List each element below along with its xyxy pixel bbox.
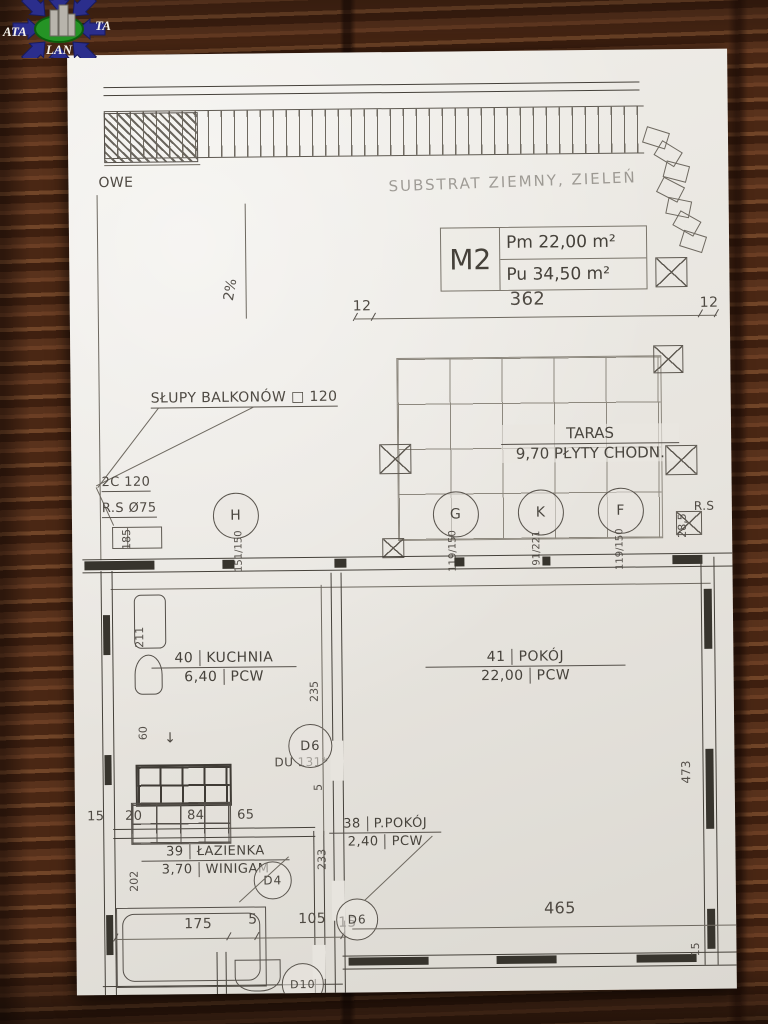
dim-84: 84: [187, 808, 204, 823]
dim-202: 202: [128, 871, 141, 892]
dim-185: 185: [120, 529, 133, 550]
room-name: POKÓJ: [511, 648, 564, 665]
door-marker-d4: D4: [254, 861, 292, 899]
dim-12-left: 12: [353, 298, 372, 314]
dim-105: 105: [298, 911, 326, 927]
area-pu: Pu 34,50 m²: [500, 258, 646, 290]
room-no: 39: [166, 844, 184, 859]
kitchen-cabinets-upper: [136, 764, 232, 807]
room-label-living: 41POKÓJ 22,00PCW: [425, 648, 625, 685]
dim-473: 473: [679, 761, 693, 784]
unit-data-box: M2 Pm 22,00 m² Pu 34,50 m²: [440, 225, 648, 291]
room-area: 3,70: [162, 862, 193, 877]
left-reference-line: [97, 195, 102, 560]
top-dimension-line: [355, 315, 717, 320]
room-area: 6,40: [184, 669, 217, 685]
bottom-dim-line-right: [352, 925, 736, 930]
room-no: 38: [343, 816, 361, 831]
dim-233: 233: [315, 849, 328, 870]
dim-12-right: 12: [700, 295, 719, 311]
pipe-short-note: R.S: [694, 499, 715, 513]
door-marker-d6-lower: D6: [336, 898, 378, 940]
columns-note: SŁUPY BALKONÓW □ 120: [151, 389, 338, 409]
room-no: 40: [174, 650, 193, 666]
pipe-note: R.S Ø75: [102, 501, 157, 519]
column-marker: [665, 445, 697, 475]
dim-20: 20: [125, 809, 142, 824]
terrace-label: TARAS 9,70 PŁYTY CHODN.: [501, 423, 679, 463]
area-pm: Pm 22,00 m²: [500, 226, 646, 259]
room-floor: PCW: [530, 667, 571, 683]
axis-marker-k: K: [518, 489, 564, 535]
terrace-name: TARAS: [501, 423, 679, 445]
logo-text-bottom: LAN: [45, 42, 73, 57]
dim-15-right: 15: [689, 942, 702, 956]
room-name: KUCHNIA: [199, 649, 273, 666]
paper-sheet: OWE SUBSTRAT ZIEMNY, ZIELEŃ 2% M2 Pm 22,…: [67, 49, 737, 996]
dim-28-5: 28,5: [676, 513, 689, 538]
dim-5: 5: [312, 784, 325, 791]
dim-465: 465: [544, 898, 576, 917]
dim-211: 211: [133, 627, 146, 648]
logo-buildings: [50, 5, 75, 36]
dim-chain-line: [321, 585, 325, 835]
room-label-hall: 38P.POKÓJ 2,40PCW: [329, 816, 441, 850]
door-marker-d6-upper: D6: [288, 724, 332, 768]
dim-362: 362: [510, 288, 546, 309]
atalan-logo: ATA TA LAN: [0, 0, 118, 58]
hatched-block: [104, 112, 199, 163]
column-marker: [655, 257, 687, 287]
facade-wall: [82, 553, 732, 574]
floor-plan: OWE SUBSTRAT ZIEMNY, ZIELEŃ 2% M2 Pm 22,…: [67, 49, 737, 996]
dim-60: 60: [137, 726, 150, 740]
kitchen-cabinets-lower: [131, 802, 231, 845]
logo-graphic: ATA TA LAN: [0, 0, 118, 58]
room-area: 22,00: [481, 668, 524, 684]
wall-inner-line: [111, 583, 711, 590]
column-marker: [379, 444, 411, 474]
logo-text-left: ATA: [2, 24, 27, 39]
room-label-kitchen: 40KUCHNIA 6,40PCW: [151, 649, 296, 686]
edge-word-label: OWE: [98, 175, 133, 191]
slope-label: 2%: [221, 278, 240, 303]
arrow-down-icon: ↓: [164, 730, 176, 746]
terrace-detail: 9,70 PŁYTY CHODN.: [501, 443, 679, 463]
room-floor: PCW: [223, 668, 264, 684]
room-name: P.POKÓJ: [367, 816, 428, 832]
dim-5b: 5: [248, 912, 257, 928]
profile-note: 2C 120: [101, 475, 150, 493]
unit-number: M2: [441, 228, 501, 291]
line: [104, 164, 200, 166]
dim-235: 235: [308, 681, 321, 702]
room-no: 41: [487, 649, 506, 665]
room-floor: PCW: [385, 834, 423, 849]
washbasin: [235, 959, 281, 991]
photo-of-floor-plan: { "logo": { "left": "ATA", "right": "TA"…: [0, 0, 768, 1024]
top-wall-line: [103, 81, 639, 96]
room-area: 2,40: [348, 834, 379, 849]
logo-text-right: TA: [95, 18, 111, 33]
stone-tile: [679, 230, 707, 253]
slope-line: [245, 204, 247, 319]
dim-15: 15: [87, 809, 104, 824]
column-marker: [653, 345, 683, 373]
dim-175: 175: [184, 916, 212, 932]
room-name: ŁAZIENKA: [190, 843, 265, 859]
substrate-label: SUBSTRAT ZIEMNY, ZIELEŃ: [388, 168, 637, 195]
dim-65: 65: [237, 808, 254, 823]
axis-marker-f: F: [598, 487, 644, 533]
